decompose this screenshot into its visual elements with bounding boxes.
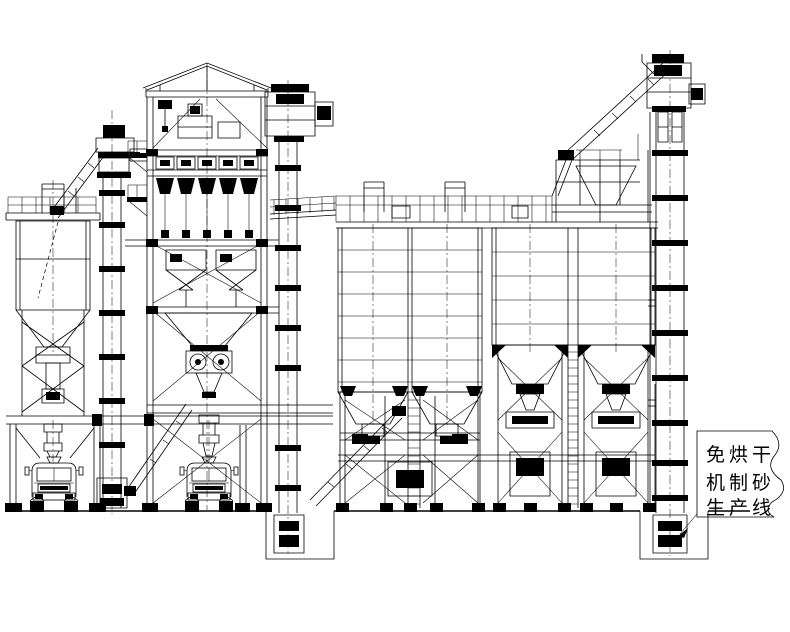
mixer-truck-2 [180, 457, 238, 512]
dust-collector [6, 180, 100, 416]
mixer-truck-1 [25, 457, 83, 512]
annotation-line-3: 生产线 [706, 497, 775, 519]
discharge-chute-2 [199, 415, 219, 462]
bucket-elevator-2 [265, 80, 333, 556]
discharge-chute-1 [44, 420, 62, 462]
annotation-line-2: 机制砂 [706, 472, 775, 494]
inclined-conveyor-center [124, 404, 192, 496]
silo-building [336, 182, 658, 512]
annotation-label: 免烘干 机制砂 生产线 [678, 431, 784, 538]
crusher-house [552, 150, 652, 222]
bucket-elevator-1 [96, 110, 147, 514]
ground-line [6, 511, 750, 559]
silo-pair-right [492, 224, 655, 428]
production-line-elevation-drawing: 免烘干 机制砂 生产线 [0, 0, 790, 632]
bucket-elevator-3 [642, 50, 705, 556]
cad-line-drawing: 免烘干 机制砂 生产线 [0, 0, 790, 632]
annotation-line-1: 免烘干 [706, 444, 775, 466]
silo-pair-left [338, 224, 482, 444]
